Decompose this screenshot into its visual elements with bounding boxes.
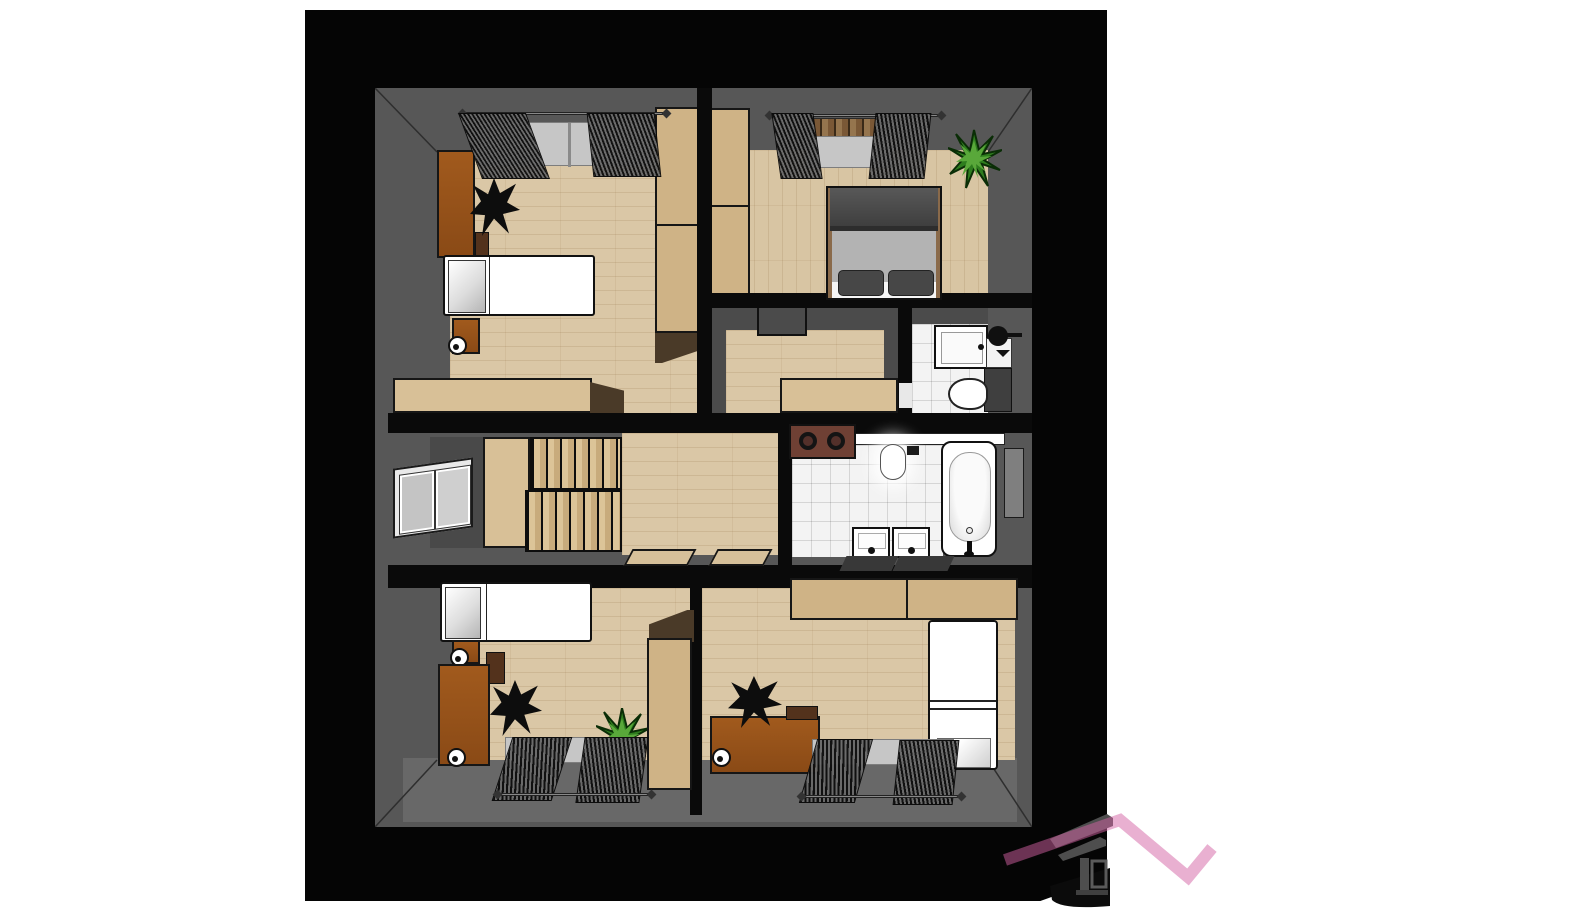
basin-tap bbox=[868, 547, 875, 554]
stairs-upper-flight bbox=[530, 437, 622, 490]
double-bed bbox=[826, 186, 942, 300]
cabinet-door-line2 bbox=[930, 708, 996, 710]
logo-pillar bbox=[1080, 858, 1089, 892]
washbasin-right bbox=[892, 527, 930, 558]
desk-knob-bottom-right bbox=[712, 748, 731, 767]
curtain-rod-bottom-right bbox=[802, 795, 962, 798]
wall-center-vertical bbox=[697, 88, 712, 433]
wc-cistern-block bbox=[984, 368, 1012, 412]
hall-mat-left bbox=[623, 549, 696, 566]
shower-tray bbox=[941, 332, 983, 364]
laundry-opening-right bbox=[827, 432, 845, 450]
wall-mid-upper bbox=[388, 413, 1032, 433]
table-lamp-top-left bbox=[448, 336, 467, 355]
stairs-lower-flight bbox=[525, 490, 622, 552]
wc-basin-arm bbox=[1006, 333, 1022, 337]
wardrobe-bottom-left-room bbox=[647, 638, 692, 790]
blanket-edge bbox=[830, 226, 938, 231]
pillow-right bbox=[888, 270, 934, 296]
bathroom-side-cabinet bbox=[1004, 448, 1024, 518]
toilet-flush-box bbox=[907, 446, 919, 455]
wc-basin-spout bbox=[996, 350, 1010, 364]
desk-drawer-top-left bbox=[475, 232, 489, 257]
closet-counter bbox=[780, 378, 898, 413]
curtain-rod-bottom-left bbox=[498, 793, 652, 796]
plant-top-right bbox=[948, 128, 1002, 192]
bathtub-tap bbox=[964, 551, 974, 557]
wc-round-basin bbox=[988, 326, 1008, 346]
shower-handle bbox=[978, 344, 984, 350]
curtain-top-left-b bbox=[587, 113, 662, 177]
wardrobe-top-left-room bbox=[655, 107, 700, 333]
house-roofline-logo bbox=[988, 782, 1228, 912]
pillow bbox=[445, 587, 481, 639]
bed-bottom-left bbox=[440, 582, 592, 642]
bed-top-left bbox=[443, 255, 595, 316]
laundry-box bbox=[789, 424, 856, 459]
bed-divider-line bbox=[486, 584, 487, 640]
wc-door-leaf bbox=[899, 383, 912, 408]
washbasin-left bbox=[852, 527, 890, 558]
basin-tap bbox=[908, 547, 915, 554]
desk-knob-bottom-left bbox=[447, 748, 466, 767]
floor-hallway bbox=[622, 433, 778, 555]
pillow bbox=[448, 260, 486, 313]
bathtub bbox=[941, 441, 997, 557]
curtain-top-right-b bbox=[869, 113, 932, 179]
stair-window-pane-right bbox=[436, 466, 470, 529]
wall-cabinets-bottom-right bbox=[790, 578, 1018, 620]
laundry-opening-left bbox=[799, 432, 817, 450]
pillow-left bbox=[838, 270, 884, 296]
wc-toilet bbox=[948, 378, 988, 410]
blanket-folded bbox=[830, 188, 938, 226]
bed-divider-line bbox=[489, 257, 490, 314]
wardrobe-top-right-room bbox=[710, 108, 750, 300]
stair-window-pane-left bbox=[400, 471, 434, 534]
stair-landing bbox=[483, 437, 530, 548]
cabinet-door-line bbox=[930, 700, 996, 702]
bath-mat-right bbox=[893, 556, 955, 571]
floor-plan-canvas bbox=[0, 0, 1569, 916]
sideboard-top-left bbox=[393, 378, 592, 413]
closet-wall-notch bbox=[757, 308, 807, 336]
bathroom-toilet bbox=[880, 444, 906, 480]
desk-caddy-bottom-right bbox=[786, 706, 818, 720]
shower-cabin bbox=[934, 325, 988, 369]
bathtub-drain bbox=[966, 527, 973, 534]
logo-base-bar bbox=[1076, 890, 1108, 895]
desk-top-left bbox=[437, 150, 475, 258]
hall-mat-right bbox=[708, 549, 772, 566]
bath-mat-left bbox=[840, 556, 899, 571]
stair-window bbox=[393, 457, 473, 538]
